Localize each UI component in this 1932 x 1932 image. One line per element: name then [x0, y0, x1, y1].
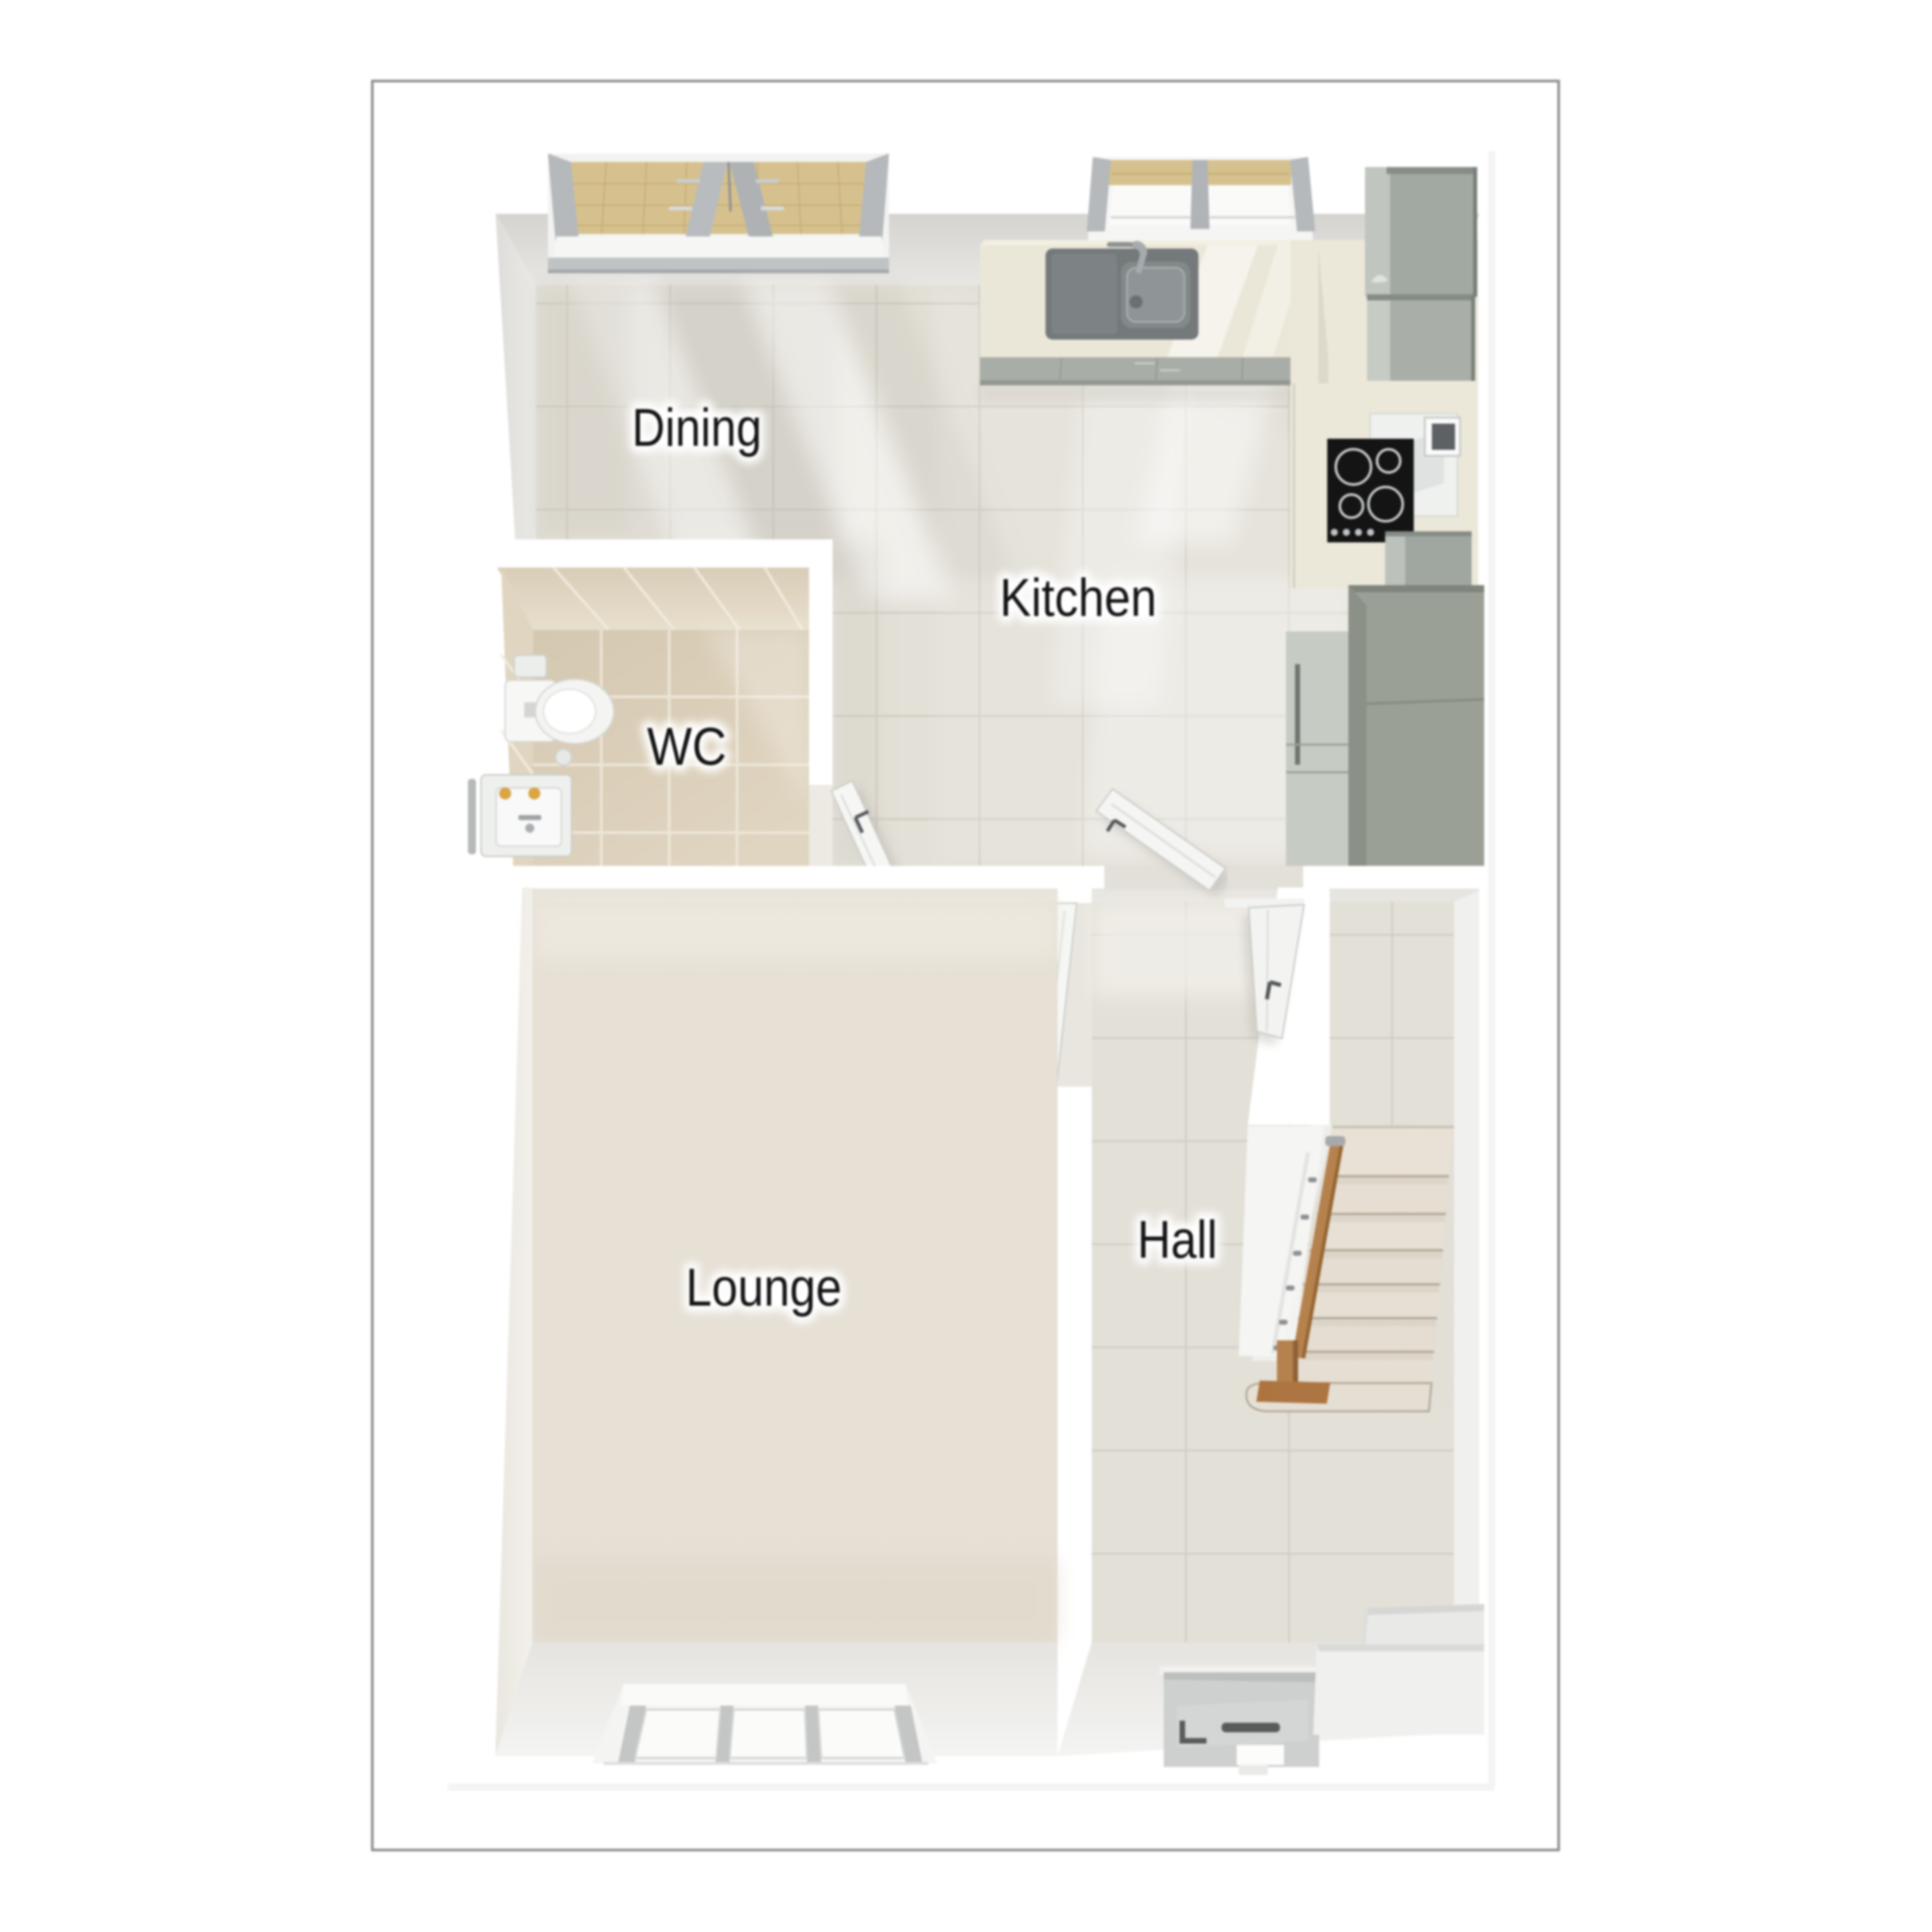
svg-text:Kitchen: Kitchen [1000, 568, 1157, 627]
svg-text:Lounge: Lounge [686, 1258, 842, 1317]
svg-text:Dining: Dining [632, 398, 762, 457]
svg-text:WC: WC [647, 717, 727, 776]
svg-text:Hall: Hall [1138, 1210, 1218, 1269]
